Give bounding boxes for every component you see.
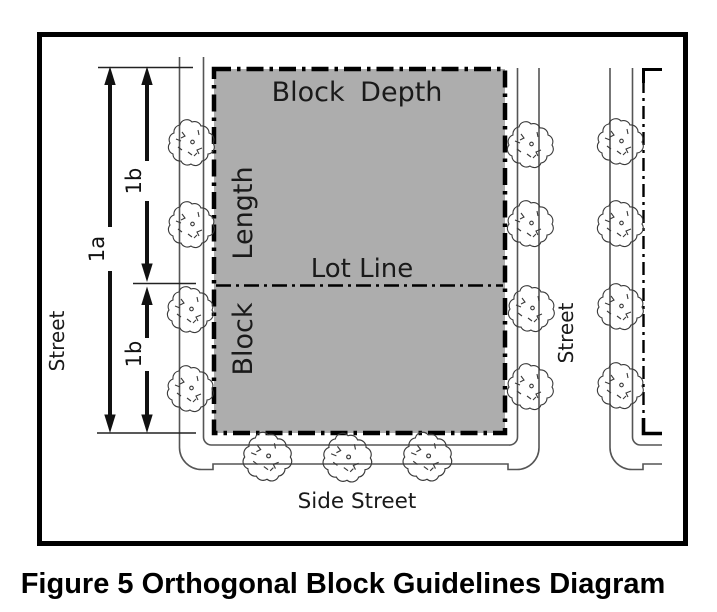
curb-line-east: [610, 68, 662, 470]
tree-icon: [167, 287, 213, 333]
arrowhead-icon: [141, 67, 152, 86]
tree-icon: [507, 364, 553, 410]
arrowhead-icon: [104, 67, 115, 86]
tree-icon: [597, 363, 643, 409]
block-depth-label: Block Depth: [272, 77, 443, 108]
dim-1b-lower-label: 1b: [122, 341, 146, 368]
dim-1a-label: 1a: [85, 236, 109, 262]
dim-1b-upper-label: 1b: [122, 168, 146, 195]
tree-icon: [507, 201, 553, 247]
tree-icon: [508, 286, 554, 332]
figure-page: Block Depth Lot Line Length Block Street…: [0, 0, 717, 612]
street-left-label: Street: [45, 310, 69, 371]
adjacent-block-boundary: [644, 70, 663, 434]
tree-icon: [243, 432, 292, 481]
tree-icon: [597, 284, 643, 330]
tree-icon: [323, 433, 372, 482]
tree-icon: [597, 201, 643, 247]
arrowhead-icon: [104, 415, 115, 434]
sidewalk-line-east: [633, 68, 663, 445]
block-label: Block: [228, 302, 259, 375]
figure-caption: Figure 5 Orthogonal Block Guidelines Dia…: [21, 568, 666, 600]
diagram-canvas: Block Depth Lot Line Length Block Street…: [0, 0, 717, 612]
tree-icon: [403, 432, 452, 481]
side-street-label: Side Street: [298, 489, 417, 514]
street-right-label: Street: [554, 302, 578, 363]
tree-icon: [168, 120, 214, 166]
tree-icon: [507, 122, 553, 168]
adjacent-block-corner-top: [644, 70, 663, 84]
length-label: Length: [228, 166, 259, 259]
lot-line-label: Lot Line: [311, 254, 414, 284]
tree-icon: [168, 202, 214, 248]
arrowhead-icon: [141, 287, 152, 306]
dimension-arrows: [104, 67, 152, 434]
arrowhead-icon: [141, 264, 152, 283]
adjacent-block-corner-bottom: [644, 418, 663, 434]
tree-icon: [167, 366, 213, 412]
tree-icon: [597, 119, 643, 165]
arrowhead-icon: [141, 415, 152, 434]
